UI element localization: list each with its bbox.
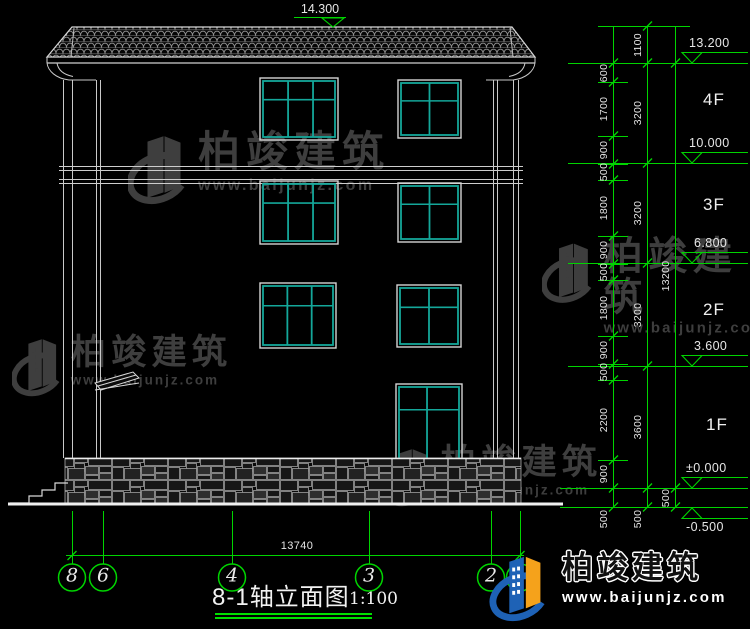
floor-label: 4F	[703, 91, 725, 108]
floor-label: 1F	[706, 416, 728, 433]
dim-label: 2200	[599, 408, 610, 433]
dim-label: 1800	[599, 196, 610, 221]
axis-bubble-label: 6	[97, 567, 109, 586]
floor-label: 2F	[703, 301, 725, 318]
axis-bubble-label: 4	[226, 567, 238, 586]
axis-bubble-label: 3	[363, 567, 375, 586]
roof	[47, 27, 535, 63]
windows	[260, 78, 462, 462]
elevation-label: 3.600	[694, 340, 727, 353]
dim-label: 500	[599, 363, 610, 381]
elevation-label: -0.500	[686, 521, 724, 534]
title-underline	[215, 617, 372, 619]
scupper-detail	[95, 372, 139, 390]
floor-label: 3F	[703, 196, 725, 213]
dim-label: 3200	[633, 201, 644, 226]
elevation-label: ±0.000	[686, 462, 727, 475]
drawing-scale: 1:100	[349, 591, 398, 608]
overall-width-dim: 13740	[270, 541, 324, 552]
window	[396, 384, 462, 462]
walls	[64, 80, 519, 503]
dim-label: 500	[599, 510, 610, 528]
axis-bubble-label: 8	[66, 567, 78, 586]
dim-label: 500	[599, 163, 610, 181]
cad-elevation-screenshot: .g1 .slabA,.g1 .slabB{fill:#3e3e3e;strok…	[0, 0, 750, 629]
elevation-label: 13.200	[689, 37, 730, 50]
elevation-label: 10.000	[689, 137, 730, 150]
dim-label: 1100	[633, 33, 644, 57]
brand-logo: 柏竣建筑 www.baijunjz.com	[488, 552, 727, 622]
elevation-label: 6.800	[694, 237, 727, 250]
window	[397, 285, 461, 347]
dimension-lines	[59, 22, 691, 592]
dim-label: 1800	[599, 296, 610, 321]
dim-label: 900	[599, 341, 610, 359]
dim-label: 900	[599, 465, 610, 483]
dim-label: 13200	[661, 260, 672, 291]
dim-label: 3600	[633, 415, 644, 440]
ridge-elevation-marker	[294, 18, 346, 28]
window	[260, 283, 336, 348]
ridge-elevation-label: 14.300	[292, 3, 348, 16]
window	[260, 181, 338, 244]
entry-steps	[10, 483, 68, 503]
title-underline	[215, 613, 372, 615]
window	[260, 78, 338, 140]
dim-label: 600	[599, 63, 610, 81]
brand-name: 柏竣建筑	[562, 552, 727, 585]
stone-plinth	[65, 458, 521, 503]
dim-label: 500	[661, 488, 672, 506]
brand-url: www.baijunjz.com	[562, 589, 727, 606]
dim-label: 500	[599, 263, 610, 281]
brand-logo-icon	[488, 552, 552, 622]
window	[398, 183, 461, 242]
dim-label: 500	[633, 510, 644, 528]
dim-label: 900	[599, 141, 610, 159]
dim-label: 900	[599, 241, 610, 259]
dim-label: 3200	[633, 302, 644, 327]
window	[398, 80, 461, 138]
elevation-markers	[676, 53, 748, 519]
dim-label: 3200	[633, 101, 644, 126]
drawing-title: 8-1轴立面图	[212, 586, 350, 610]
dim-label: 1700	[599, 97, 610, 122]
